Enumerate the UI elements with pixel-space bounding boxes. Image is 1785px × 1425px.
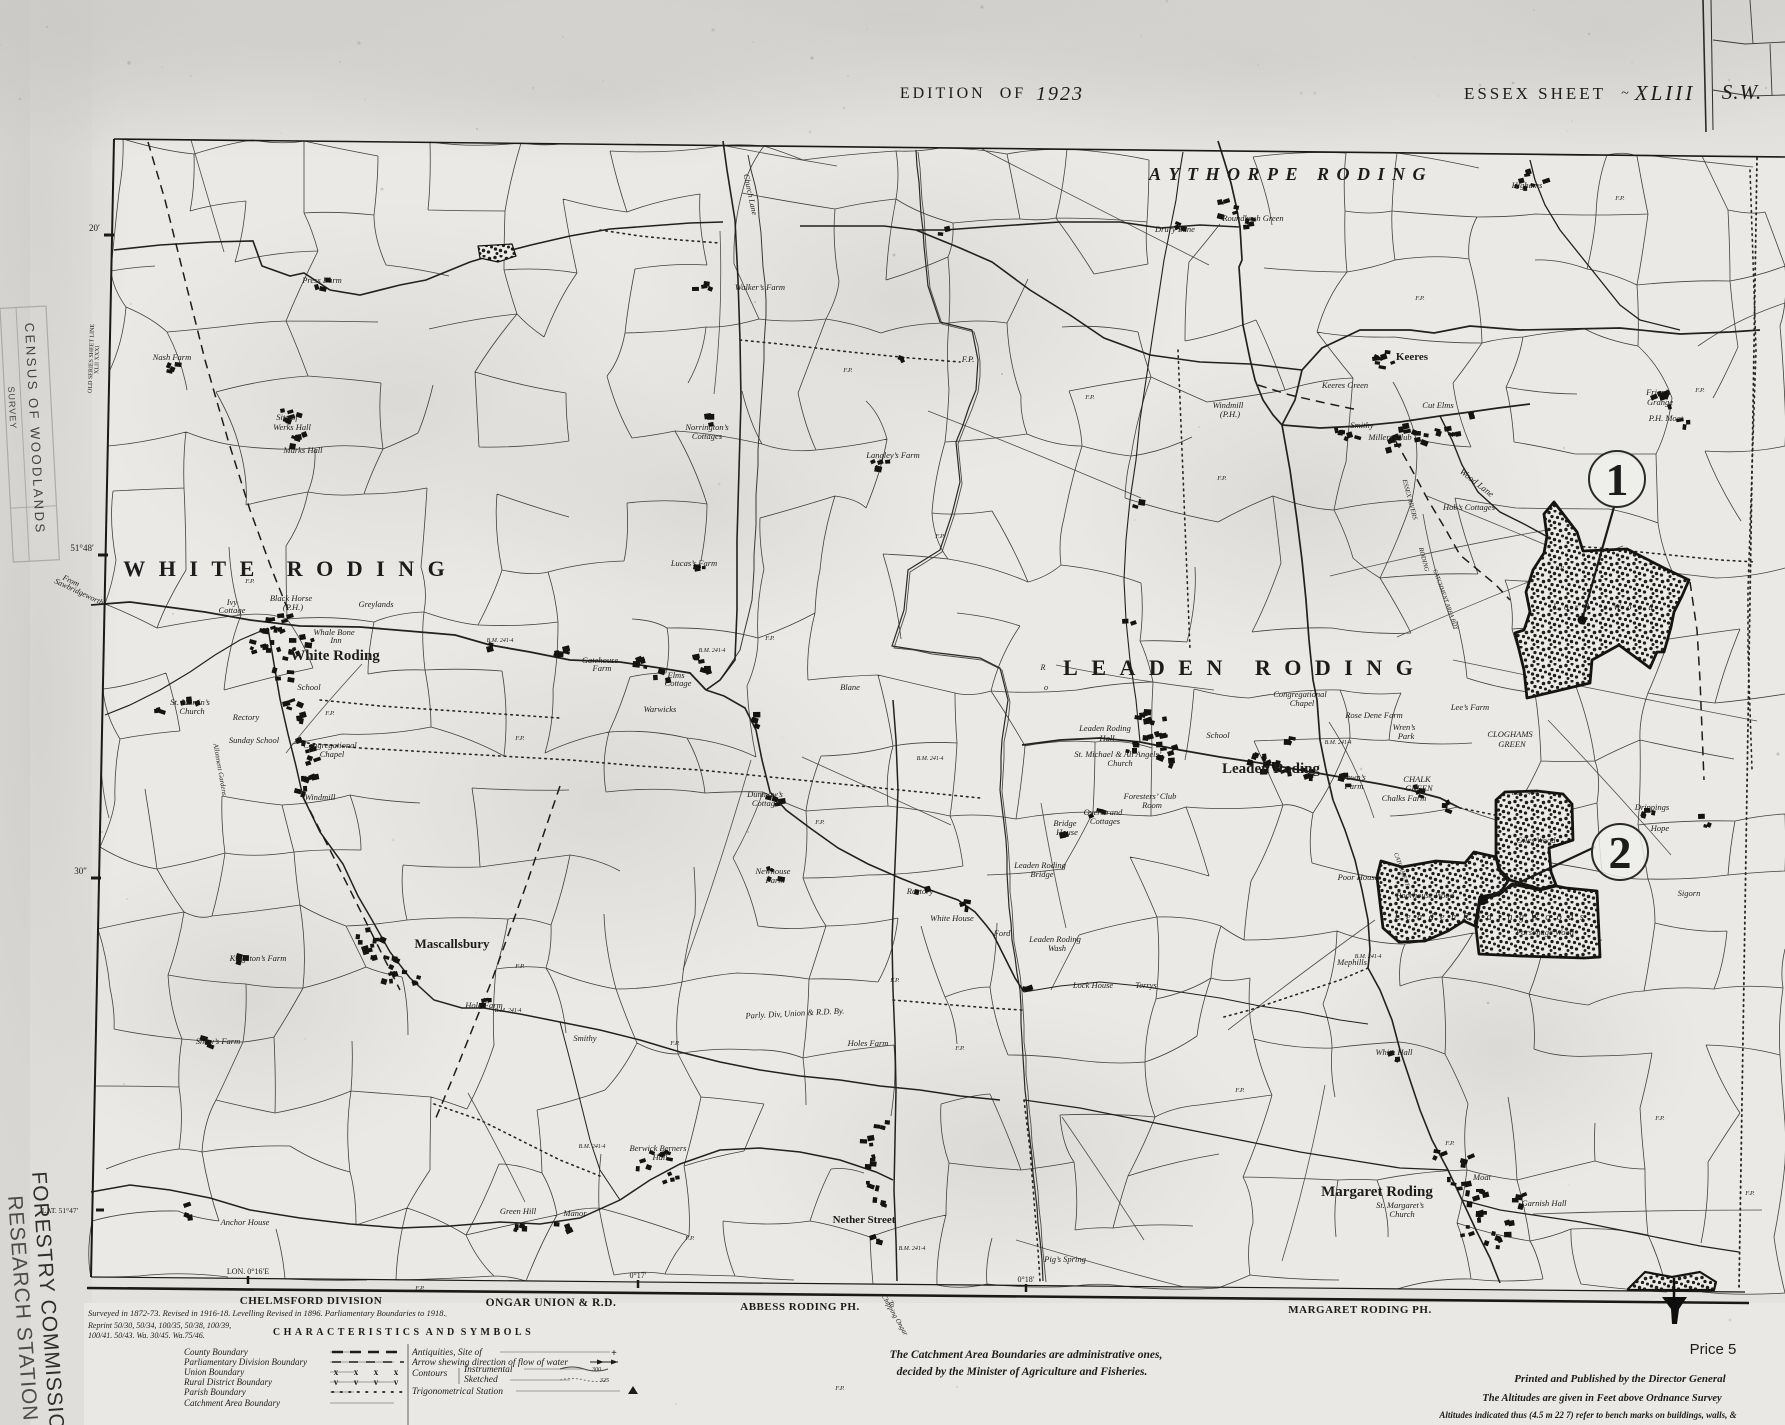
svg-text:Poor House: Poor House xyxy=(1337,872,1379,882)
svg-text:Bridge: Bridge xyxy=(1030,869,1053,879)
svg-text:20′: 20′ xyxy=(89,223,100,233)
svg-text:Parliamentary Division Boundar: Parliamentary Division Boundary xyxy=(183,1357,307,1367)
svg-text:Cottages: Cottages xyxy=(1090,816,1121,826)
svg-text:Ford: Ford xyxy=(993,928,1011,938)
svg-text:County Boundary: County Boundary xyxy=(184,1347,248,1357)
svg-text:A Y T H O R P E R O D I N G: A Y T H O R P E R O D I N G xyxy=(1148,164,1427,184)
svg-text:Church: Church xyxy=(1389,1209,1414,1219)
svg-text:Grange: Grange xyxy=(1647,397,1673,407)
svg-text:Altitudes indicated thus (4.5: Altitudes indicated thus (4.5 m 22 7) re… xyxy=(1438,1410,1736,1420)
svg-text:S.W.: S.W. xyxy=(1722,80,1763,104)
svg-text:F.P.: F.P. xyxy=(1084,394,1095,401)
svg-text:School: School xyxy=(1206,730,1230,740)
svg-text:Printed and Published by the: Printed and Published by the Director Ge… xyxy=(1514,1373,1726,1385)
svg-text:325: 325 xyxy=(599,1378,609,1384)
svg-text:Cottages: Cottages xyxy=(692,431,723,441)
svg-text:Church: Church xyxy=(1107,758,1132,768)
svg-text:Sunday School: Sunday School xyxy=(229,735,280,745)
svg-text:Instrumental: Instrumental xyxy=(463,1365,513,1375)
svg-text:Anchor House: Anchor House xyxy=(220,1217,270,1227)
svg-text:o: o xyxy=(1044,683,1048,692)
svg-text:Catchment Area Boundary: Catchment Area Boundary xyxy=(184,1398,280,1408)
svg-text:Leaden Roding: Leaden Roding xyxy=(1078,723,1131,733)
svg-text:300: 300 xyxy=(591,1367,601,1373)
svg-text:F.P.: F.P. xyxy=(961,354,974,364)
svg-text:CHELMSFORD DIVISION: CHELMSFORD DIVISION xyxy=(240,1295,382,1307)
svg-text:Highams: Highams xyxy=(1511,180,1543,190)
svg-text:Keeres: Keeres xyxy=(1396,351,1429,363)
svg-text:F.P.: F.P. xyxy=(1444,1140,1455,1147)
svg-text:House: House xyxy=(1055,827,1078,837)
svg-text:Blane: Blane xyxy=(840,682,860,692)
svg-text:B.M. 241·4: B.M. 241·4 xyxy=(699,647,726,654)
svg-text:Cottage: Cottage xyxy=(665,678,692,688)
svg-text:Nether Street: Nether Street xyxy=(833,1214,896,1226)
svg-text:2: 2 xyxy=(1609,827,1632,878)
svg-text:F.P.: F.P. xyxy=(889,977,900,984)
svg-text:Drippings: Drippings xyxy=(1634,802,1670,812)
svg-text:x: x xyxy=(394,1367,399,1377)
svg-text:Chapel: Chapel xyxy=(320,749,345,759)
svg-text:B.M. 241·4: B.M. 241·4 xyxy=(495,1007,522,1014)
svg-text:R: R xyxy=(1040,663,1046,672)
svg-text:F.P.: F.P. xyxy=(954,1045,965,1052)
svg-text:Press Farm: Press Farm xyxy=(301,275,342,285)
svg-text:MARGARET RODING PH.: MARGARET RODING PH. xyxy=(1288,1304,1431,1316)
svg-text:1923: 1923 xyxy=(1036,83,1084,105)
svg-text:LON. 0°16′E: LON. 0°16′E xyxy=(227,1267,269,1276)
svg-text:F.P.: F.P. xyxy=(244,578,255,585)
svg-text:Warwicks: Warwicks xyxy=(644,704,677,714)
svg-text:v: v xyxy=(334,1377,339,1387)
svg-text:F.P.: F.P. xyxy=(324,710,335,717)
svg-text:P.H. Moat: P.H. Moat xyxy=(1648,413,1684,423)
svg-text:Keeres Green: Keeres Green xyxy=(1321,380,1368,390)
svg-text:XLII XXXI: XLII XXXI xyxy=(94,345,101,374)
svg-text:C H A R A C T E R I S T I C S: C H A R A C T E R I S T I C S A N D S Y … xyxy=(273,1327,531,1338)
svg-text:F.P.: F.P. xyxy=(1234,1087,1245,1094)
svg-text:Chalks Farm: Chalks Farm xyxy=(1382,793,1427,803)
svg-text:F.P.: F.P. xyxy=(764,635,775,642)
svg-text:Smithy: Smithy xyxy=(1350,420,1373,430)
svg-text:B.M. 241·4: B.M. 241·4 xyxy=(487,637,514,644)
svg-text:F.P.: F.P. xyxy=(514,735,525,742)
svg-text:Hob’s Cottages: Hob’s Cottages xyxy=(1442,502,1496,512)
svg-text:Room: Room xyxy=(1141,800,1162,810)
svg-text:Trigonometrical Station: Trigonometrical Station xyxy=(412,1387,503,1397)
svg-text:Windmill: Windmill xyxy=(305,792,336,802)
svg-text:F.P.: F.P. xyxy=(684,1235,695,1242)
svg-text:F.P.: F.P. xyxy=(1614,195,1625,202)
svg-text:L o r d ’ s W o o d: L o r d ’ s W o o d xyxy=(1552,602,1655,612)
svg-text:Green Hill: Green Hill xyxy=(500,1206,537,1216)
svg-text:v: v xyxy=(374,1377,379,1387)
svg-text:F.P.: F.P. xyxy=(1654,1115,1665,1122)
svg-text:B.M. 241·4: B.M. 241·4 xyxy=(917,755,944,762)
svg-text:F.P.: F.P. xyxy=(1694,387,1705,394)
svg-text:B.M. 241·4: B.M. 241·4 xyxy=(1355,953,1382,960)
svg-text:White Hall: White Hall xyxy=(1375,1047,1413,1057)
svg-text:Manor: Manor xyxy=(562,1208,587,1218)
svg-text:Terrys: Terrys xyxy=(1135,980,1157,990)
svg-text:F.P.: F.P. xyxy=(1744,1190,1755,1197)
svg-text:Chapel: Chapel xyxy=(1290,698,1315,708)
svg-text:LAT. 51°47′: LAT. 51°47′ xyxy=(42,1206,79,1215)
svg-text:F.P.: F.P. xyxy=(814,819,825,826)
svg-text:Greylands: Greylands xyxy=(358,599,394,609)
svg-text:Rectory: Rectory xyxy=(232,712,260,722)
svg-text:Lee’s Farm: Lee’s Farm xyxy=(1450,702,1489,712)
svg-text:Parsonage Wood: Parsonage Wood xyxy=(1515,927,1575,937)
svg-text:The Altitudes are given in Fe: The Altitudes are given in Feet above Or… xyxy=(1482,1393,1722,1404)
svg-text:Cut Elms: Cut Elms xyxy=(1422,400,1454,410)
svg-text:School: School xyxy=(297,682,321,692)
svg-text:0°18′: 0°18′ xyxy=(1018,1275,1035,1284)
svg-text:XLIII: XLIII xyxy=(1634,81,1696,105)
svg-text:Hall: Hall xyxy=(651,1152,668,1162)
svg-text:W H I T E R O D I N G: W H I T E R O D I N G xyxy=(123,556,448,581)
svg-text:White House: White House xyxy=(930,913,974,923)
svg-text:Wash: Wash xyxy=(1048,943,1066,953)
svg-text:v: v xyxy=(354,1377,359,1387)
svg-text:+: + xyxy=(611,1348,617,1359)
svg-text:F.P.: F.P. xyxy=(1554,565,1565,572)
svg-text:Millers Club: Millers Club xyxy=(1367,432,1411,442)
svg-text:F.P.: F.P. xyxy=(834,1385,845,1392)
svg-text:EDITION OF: EDITION OF xyxy=(900,85,1026,102)
svg-text:B.M. 241·4: B.M. 241·4 xyxy=(1512,790,1539,797)
svg-text:100/41. 50/43. Wa. 30/45. Wa: 100/41. 50/43. Wa. 30/45. Wa.75/46. xyxy=(88,1331,205,1340)
svg-text:Contours: Contours xyxy=(412,1369,448,1379)
svg-text:Church: Church xyxy=(179,706,204,716)
svg-text:B.M. 241·4: B.M. 241·4 xyxy=(899,1245,926,1252)
svg-text:30″: 30″ xyxy=(74,866,87,876)
svg-text:0°17′: 0°17′ xyxy=(630,1271,647,1280)
svg-text:(P.H.): (P.H.) xyxy=(283,602,303,612)
svg-text:Hall: Hall xyxy=(1098,733,1115,743)
svg-text:Sketched: Sketched xyxy=(464,1375,498,1385)
svg-text:Inn: Inn xyxy=(329,635,341,645)
svg-text:Nash Farm: Nash Farm xyxy=(152,352,192,362)
svg-text:Walker’s Farm: Walker’s Farm xyxy=(735,282,785,292)
svg-text:v: v xyxy=(394,1377,399,1387)
svg-text:Moat: Moat xyxy=(1472,1172,1492,1182)
svg-text:Lock House: Lock House xyxy=(1072,980,1114,990)
svg-text:(P.H.): (P.H.) xyxy=(1220,409,1240,419)
svg-text:Site of: Site of xyxy=(276,412,299,422)
svg-text:Werks Hall: Werks Hall xyxy=(273,422,311,432)
svg-text:1: 1 xyxy=(1606,454,1629,505)
svg-text:Drury Lane: Drury Lane xyxy=(1154,224,1195,234)
svg-text:Parish Boundary: Parish Boundary xyxy=(183,1387,246,1397)
svg-text:x: x xyxy=(374,1367,379,1377)
svg-text:Pig’s Spring: Pig’s Spring xyxy=(1043,1254,1086,1264)
svg-text:Park: Park xyxy=(1397,731,1415,741)
svg-text:Sigorn: Sigorn xyxy=(1678,888,1701,898)
svg-text:L e a d e n R o d i n g W: L e a d e n R o d i n g W o o d s xyxy=(1393,912,1585,923)
svg-text:Kingston’s Farm: Kingston’s Farm xyxy=(229,953,287,963)
svg-text:ESSEX SHEET: ESSEX SHEET xyxy=(1464,84,1606,103)
svg-text:F.P.: F.P. xyxy=(842,367,853,374)
svg-text:Smithy: Smithy xyxy=(573,1033,596,1043)
svg-text:Farm: Farm xyxy=(765,875,785,885)
svg-text:Snow’s Farm: Snow’s Farm xyxy=(196,1036,240,1046)
svg-text:F.P.: F.P. xyxy=(1216,475,1227,482)
svg-text:Price 5: Price 5 xyxy=(1690,1341,1737,1358)
svg-text:Langley’s Farm: Langley’s Farm xyxy=(865,450,919,460)
svg-text:Friar’s: Friar’s xyxy=(1645,387,1670,397)
svg-text:GREEN: GREEN xyxy=(1405,783,1434,793)
svg-text:Antiquities, Site of: Antiquities, Site of xyxy=(411,1347,483,1358)
svg-text:x: x xyxy=(354,1367,359,1377)
svg-text:Leaden Roding: Leaden Roding xyxy=(1222,761,1320,777)
svg-text:decided by the Minister of Ag: decided by the Minister of Agriculture a… xyxy=(897,1366,1148,1378)
svg-text:Roundbush Green: Roundbush Green xyxy=(1221,213,1283,223)
svg-text:The Catchment Area Boundarie: The Catchment Area Boundaries are admini… xyxy=(890,1349,1163,1361)
svg-text:White Roding: White Roding xyxy=(290,648,380,664)
svg-text:Lucas’s Farm: Lucas’s Farm xyxy=(670,558,717,568)
svg-text:Reprint 50/30, 50/34, 100/: Reprint 50/30, 50/34, 100/35, 50/38, 100… xyxy=(87,1321,231,1330)
svg-text:51°48′: 51°48′ xyxy=(70,543,94,553)
svg-text:Union Boundary: Union Boundary xyxy=(184,1367,244,1377)
svg-text:Surveyed in 1872-73. Revised: Surveyed in 1872-73. Revised in 1916-18.… xyxy=(88,1308,446,1318)
svg-text:F.P.: F.P. xyxy=(514,963,525,970)
svg-text:Marks Hall: Marks Hall xyxy=(283,445,324,455)
svg-text:Cottage: Cottage xyxy=(219,605,246,615)
svg-text:Garnish Hall: Garnish Hall xyxy=(1521,1198,1567,1208)
svg-text:~: ~ xyxy=(1621,86,1629,101)
svg-text:Rose Dene Farm: Rose Dene Farm xyxy=(1344,710,1403,720)
svg-text:B.M. 241·4: B.M. 241·4 xyxy=(579,1143,606,1150)
svg-text:Margaret Roding: Margaret Roding xyxy=(1321,1184,1433,1200)
svg-text:CLOGHAMS: CLOGHAMS xyxy=(1487,729,1533,739)
svg-text:F.P.: F.P. xyxy=(1414,295,1425,302)
svg-text:Farm: Farm xyxy=(592,663,612,673)
svg-text:F.P.: F.P. xyxy=(934,533,945,540)
svg-text:Poorhouse Wood: Poorhouse Wood xyxy=(1395,890,1455,900)
svg-text:B.M. 241·4: B.M. 241·4 xyxy=(1325,739,1352,746)
svg-text:F.P.: F.P. xyxy=(414,1285,425,1292)
svg-text:GREEN: GREEN xyxy=(1498,739,1527,749)
svg-text:Farm: Farm xyxy=(1344,781,1364,791)
svg-text:x: x xyxy=(334,1367,339,1377)
svg-text:Giles Wood: Giles Wood xyxy=(1516,835,1556,845)
svg-text:ONGAR UNION & R.D.: ONGAR UNION & R.D. xyxy=(486,1297,617,1309)
svg-text:Hope: Hope xyxy=(1650,823,1670,833)
svg-text:Mascallsbury: Mascallsbury xyxy=(414,936,490,951)
svg-text:Holes Farm: Holes Farm xyxy=(847,1038,889,1048)
svg-text:F.P.: F.P. xyxy=(669,1040,680,1047)
svg-text:ABBESS RODING PH.: ABBESS RODING PH. xyxy=(740,1301,859,1313)
svg-text:L E A D E N R O D I N G: L E A D E N R O D I N G xyxy=(1063,655,1417,680)
svg-text:Rural District Boundary: Rural District Boundary xyxy=(183,1377,272,1387)
svg-text:Cottages: Cottages xyxy=(752,798,783,808)
svg-text:Rectory: Rectory xyxy=(906,886,934,896)
